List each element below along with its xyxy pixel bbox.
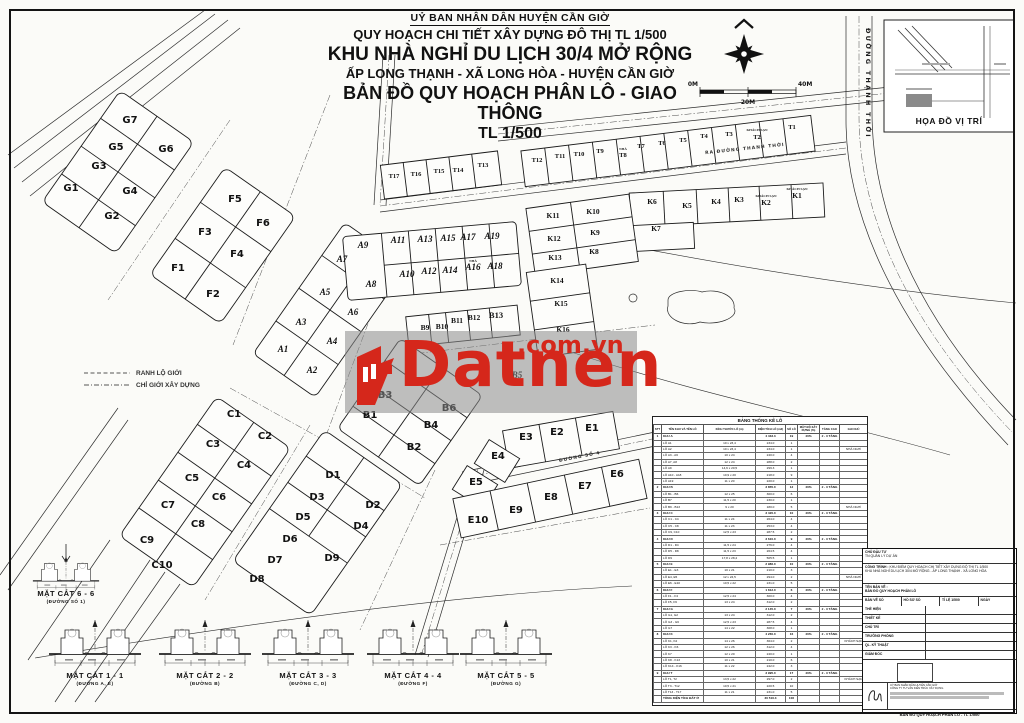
legend-item: CHỈ GIỚI XÂY DỰNG <box>84 379 200 391</box>
lot-label-E2: E2 <box>550 427 564 438</box>
cross-section-drawings <box>49 620 552 666</box>
table-title: BẢNG THỐNG KÊ LÔ <box>653 417 867 424</box>
note-label: KHÁCH SẠN <box>746 127 768 132</box>
lot-label-T3: T3 <box>725 131 733 138</box>
owner-row: CHỦ ĐẦU TƯ TN QUẢN LÝ DỰ ÁN <box>863 549 1016 564</box>
legend-label: CHỈ GIỚI XÂY DỰNG <box>136 382 200 389</box>
lot-label-C4: C4 <box>237 460 251 471</box>
lot-label-A16: A16 <box>464 262 481 272</box>
watermark-logo-icon <box>347 331 399 413</box>
compass-icon <box>724 20 764 74</box>
section-4-label: MẶT CẮT 4 - 4(ĐƯỜNG F) <box>360 671 466 686</box>
lot-label-K14: K14 <box>550 276 564 285</box>
lot-label-T10: T10 <box>574 151 585 158</box>
section-1-label: MẶT CẮT 1 - 1(ĐƯỜNG A, E) <box>42 671 148 686</box>
lot-label-E4: E4 <box>491 451 505 462</box>
lot-label-E1: E1 <box>585 423 599 434</box>
dash-dot-line-icon <box>84 382 130 388</box>
drawing-row: TÊN BẢN VẼ : BẢN ĐỒ QUY HOẠCH PHÂN LÔ <box>863 584 1016 597</box>
lot-label-D5: D5 <box>295 512 310 523</box>
table-row: TỔNG DIỆN TÍCH ĐẤT Ở30 516.3106 <box>654 696 868 702</box>
header-location: ẤP LONG THẠNH - XÃ LONG HÒA - HUYỆN CẦN … <box>318 67 702 82</box>
lot-label-E9: E9 <box>509 505 523 516</box>
lot-label-T1: T1 <box>788 124 796 131</box>
lot-label-K2: K2 <box>761 198 771 207</box>
watermark: Datnen .com.vn <box>345 331 637 413</box>
lot-label-K3: K3 <box>734 195 744 204</box>
note-label: NHÀ <box>469 258 477 263</box>
sign-row: QL. KỸ THUẬT <box>863 642 1016 651</box>
header-scale: TL 1/500 <box>318 125 702 143</box>
lot-label-E3: E3 <box>519 432 533 443</box>
lot-label-T2: T2 <box>753 134 761 141</box>
lot-label-C3: C3 <box>206 439 220 450</box>
lot-label-G7: G7 <box>122 115 137 126</box>
lot-label-K8: K8 <box>589 247 599 256</box>
lot-label-F3: F3 <box>198 227 212 238</box>
legend-label: RANH LỘ GIỚI <box>136 370 182 377</box>
lot-label-T11: T11 <box>555 153 565 160</box>
lot-label-E5: E5 <box>469 477 483 488</box>
lot-label-A9: A9 <box>357 240 369 250</box>
lot-label-C8: C8 <box>191 519 205 530</box>
note-label: KHÁCH SẠN <box>755 193 777 198</box>
lot-label-D9: D9 <box>324 553 339 564</box>
lot-label-T13: T13 <box>478 162 490 169</box>
lot-label-A18: A18 <box>486 261 503 271</box>
section-3-label: MẶT CẮT 3 - 3(ĐƯỜNG C, D) <box>255 671 361 686</box>
lot-label-T8: T8 <box>619 152 627 159</box>
lot-label-E6: E6 <box>610 469 624 480</box>
lot-label-K5: K5 <box>682 201 692 210</box>
lot-label-A12: A12 <box>420 266 437 276</box>
lot-label-E7: E7 <box>578 481 592 492</box>
lot-label-D3: D3 <box>309 492 324 503</box>
lot-statistics-table: BẢNG THỐNG KÊ LÔ STTTÊN KHU VÀ TÊN LÔ KÍ… <box>652 416 868 706</box>
table-header-row: STTTÊN KHU VÀ TÊN LÔ KÍCH THƯỚC LÔ (m)DI… <box>654 425 868 434</box>
lot-label-G4: G4 <box>122 186 137 197</box>
stamp-box <box>897 663 933 682</box>
legend-item: RANH LỘ GIỚI <box>84 367 200 379</box>
sign-row: CHỦ TRÌ <box>863 624 1016 633</box>
lot-label-A13: A13 <box>416 234 433 244</box>
lot-label-K6: K6 <box>647 197 657 206</box>
lot-label-A3: A3 <box>295 317 307 327</box>
sign-row: TRƯỞNG PHÒNG <box>863 633 1016 642</box>
scale-40: 40M <box>798 81 812 88</box>
company-logo-icon <box>863 683 888 709</box>
note-label: NHÀ <box>619 146 627 151</box>
title-block-footer: BẢN ĐỒ QUY HOẠCH PHÂN LÔ - TL 1/500 <box>863 710 1016 719</box>
section-6-label: MẶT CẮT 6 - 6(ĐƯỜNG SỐ 1) <box>25 589 107 604</box>
stamp-area <box>863 660 1016 683</box>
lot-label-K11: K11 <box>547 211 560 220</box>
lot-label-T9: T9 <box>596 148 604 155</box>
header-plan-type: QUY HOẠCH CHI TIẾT XÂY DỰNG ĐÔ THỊ TL 1/… <box>318 28 702 43</box>
lot-label-A14: A14 <box>441 265 458 275</box>
lot-label-C1: C1 <box>227 409 241 420</box>
lot-label-A2: A2 <box>306 365 318 375</box>
lot-label-G1: G1 <box>63 183 78 194</box>
lot-label-F6: F6 <box>256 218 270 229</box>
lot-label-C2: C2 <box>258 431 272 442</box>
lot-label-B2: B2 <box>407 442 422 453</box>
lot-label-A4: A4 <box>326 336 338 346</box>
plan-sheet: ĐƯỜNG THẠNH THỚI RA ĐƯỜNG THANH THỚI ĐƯỜ… <box>0 0 1024 723</box>
lot-label-A17: A17 <box>459 232 476 242</box>
lot-label-K12: K12 <box>547 234 561 243</box>
lot-label-A10: A10 <box>398 269 415 279</box>
pond <box>629 290 735 323</box>
sign-row: THIẾT KẾ <box>863 615 1016 624</box>
lot-label-T16: T16 <box>411 171 423 178</box>
lot-label-F2: F2 <box>206 289 220 300</box>
lot-label-F5: F5 <box>228 194 242 205</box>
title-block: CHỦ ĐẦU TƯ TN QUẢN LÝ DỰ ÁN CÔNG TRÌNH :… <box>862 548 1017 714</box>
lot-label-C9: C9 <box>140 535 154 546</box>
lot-label-G6: G6 <box>158 144 173 155</box>
lot-label-B4: B4 <box>424 420 439 431</box>
lot-label-A1: A1 <box>277 344 289 354</box>
legend: RANH LỘ GIỚI CHỈ GIỚI XÂY DỰNG <box>84 367 200 391</box>
lot-label-T12: T12 <box>532 157 543 164</box>
header-project-name: KHU NHÀ NGHỈ DU LỊCH 30/4 MỞ RỘNG <box>318 44 702 65</box>
lot-label-A15: A15 <box>439 233 456 243</box>
section-6-6-drawing <box>33 544 99 590</box>
lot-label-T7: T7 <box>637 143 645 150</box>
lot-label-K4: K4 <box>711 197 721 206</box>
scale-bar: 0M 40M 20M <box>688 81 813 106</box>
lot-label-E10: E10 <box>468 515 489 526</box>
lot-label-A8: A8 <box>365 279 377 289</box>
lot-label-G2: G2 <box>104 211 119 222</box>
scale-20: 20M <box>741 99 755 106</box>
lot-label-C7: C7 <box>161 500 175 511</box>
lot-label-D7: D7 <box>267 555 282 566</box>
lot-label-B11: B11 <box>451 316 463 325</box>
lot-label-C6: C6 <box>212 492 226 503</box>
lot-label-G5: G5 <box>108 142 123 153</box>
lot-label-C5: C5 <box>185 473 199 484</box>
lot-label-T14: T14 <box>453 167 465 174</box>
lot-label-K15: K15 <box>554 299 568 308</box>
lot-label-B12: B12 <box>468 313 481 322</box>
lot-label-C10: C10 <box>151 560 172 571</box>
section-5-label: MẶT CẮT 5 - 5(ĐƯỜNG G) <box>453 671 559 686</box>
lot-label-K1: K1 <box>792 191 802 200</box>
lot-label-D4: D4 <box>353 521 368 532</box>
lot-label-D6: D6 <box>282 534 297 545</box>
lot-label-A5: A5 <box>319 287 331 297</box>
lot-label-A7: A7 <box>336 254 348 264</box>
lot-label-F4: F4 <box>230 249 244 260</box>
section-2-label: MẶT CẮT 2 - 2(ĐƯỜNG B) <box>152 671 258 686</box>
lot-label-K10: K10 <box>586 207 600 216</box>
dashed-line-icon <box>84 370 130 376</box>
lot-label-K13: K13 <box>548 253 562 262</box>
lot-label-A19: A19 <box>483 231 500 241</box>
header-agency: UỶ BAN NHÂN DÂN HUYỆN CẦN GIỜ <box>318 13 702 25</box>
header-map-title: BẢN ĐỒ QUY HOẠCH PHÂN LÔ - GIAO THÔNG <box>318 83 702 123</box>
lot-label-F1: F1 <box>171 263 185 274</box>
lot-label-T15: T15 <box>434 168 446 175</box>
lot-label-D2: D2 <box>365 500 380 511</box>
sheet-header: UỶ BAN NHÂN DÂN HUYỆN CẦN GIỜ QUY HOẠCH … <box>318 13 702 143</box>
sign-row: GIÁM ĐỐC <box>863 651 1016 660</box>
lot-label-E8: E8 <box>544 492 558 503</box>
lot-label-A6: A6 <box>347 307 359 317</box>
lot-label-T17: T17 <box>389 173 401 180</box>
agency-row: UỶ BAN NHÂN DÂN HUYỆN CẦN GIỜ CÔNG TY TƯ… <box>863 683 1016 710</box>
meta-row: BẢN VẼ SỐHỒ SƠ SỐ TỈ LỆ 1/500NGÀY <box>863 597 1016 606</box>
sign-row: THỂ HIỆN <box>863 606 1016 615</box>
lot-label-A11: A11 <box>390 235 406 245</box>
lot-label-D1: D1 <box>325 470 340 481</box>
project-row: CÔNG TRÌNH : KHU ĐIỂM QUY HOẠCH CHI TIẾT… <box>863 564 1016 584</box>
road-label-thanh-thoi: ĐƯỜNG THẠNH THỚI <box>864 28 873 139</box>
lot-label-D8: D8 <box>249 574 264 585</box>
watermark-suffix: .com.vn <box>517 333 624 357</box>
inset-title: HỌA ĐỒ VỊ TRÍ <box>884 116 1014 126</box>
lot-label-B13: B13 <box>489 310 503 320</box>
lot-label-K9: K9 <box>590 228 600 237</box>
note-label: KHÁCH SẠN <box>786 186 808 191</box>
lot-label-G3: G3 <box>91 161 106 172</box>
lot-label-K7: K7 <box>651 224 661 233</box>
